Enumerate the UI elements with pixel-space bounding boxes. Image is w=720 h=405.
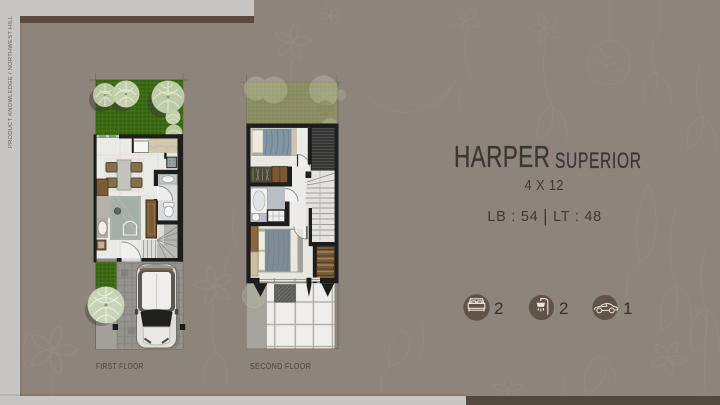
svg-text:2: 2: [494, 299, 503, 318]
svg-text:1: 1: [623, 299, 632, 318]
svg-text:2: 2: [559, 299, 568, 318]
